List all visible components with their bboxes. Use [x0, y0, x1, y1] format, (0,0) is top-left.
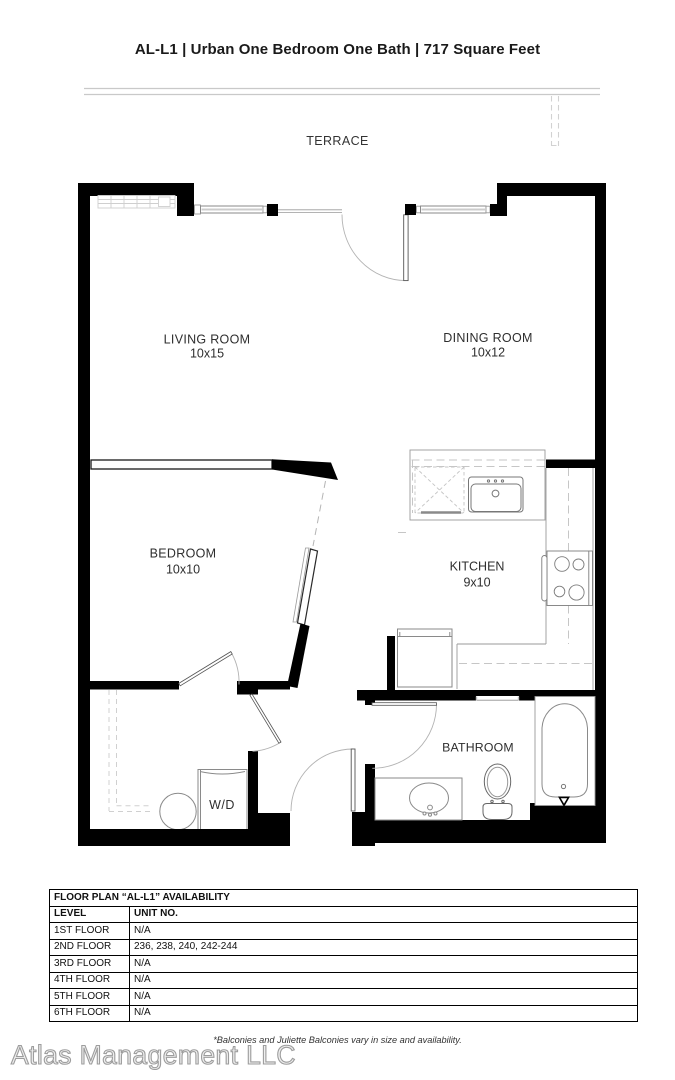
- svg-text:10x15: 10x15: [190, 347, 224, 361]
- svg-text:BEDROOM: BEDROOM: [150, 547, 217, 561]
- svg-text:10x10: 10x10: [166, 563, 200, 577]
- svg-text:BATHROOM: BATHROOM: [442, 741, 514, 755]
- svg-text:W/D: W/D: [209, 798, 235, 812]
- svg-text:9x10: 9x10: [463, 576, 490, 590]
- svg-text:10x12: 10x12: [471, 346, 505, 360]
- svg-text:DINING ROOM: DINING ROOM: [443, 331, 532, 345]
- svg-text:LIVING ROOM: LIVING ROOM: [164, 333, 251, 347]
- svg-text:TERRACE: TERRACE: [306, 134, 369, 148]
- svg-text:KITCHEN: KITCHEN: [450, 560, 505, 574]
